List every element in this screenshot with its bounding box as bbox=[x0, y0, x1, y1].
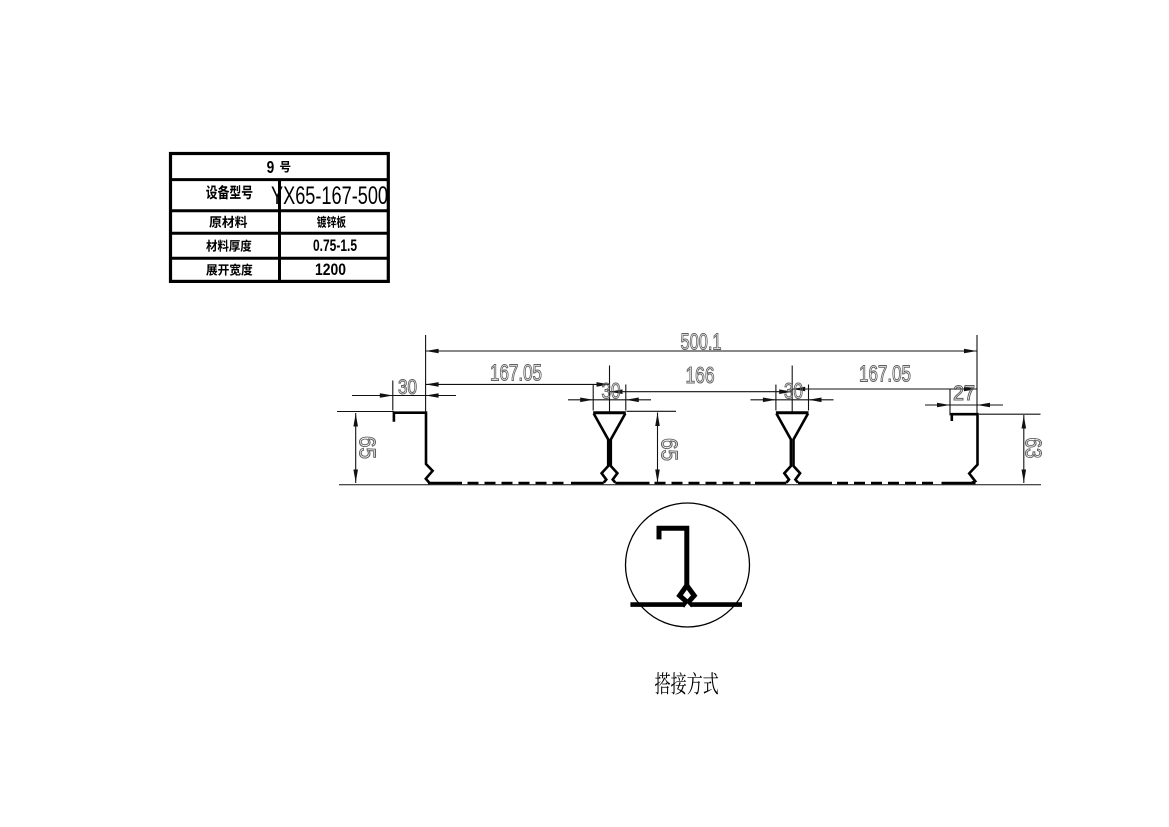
svg-text:1200: 1200 bbox=[315, 261, 346, 279]
svg-text:500.1: 500.1 bbox=[681, 329, 722, 355]
svg-text:YX65-167-500: YX65-167-500 bbox=[271, 182, 388, 210]
svg-text:167.05: 167.05 bbox=[859, 361, 911, 387]
svg-text:30: 30 bbox=[398, 376, 417, 399]
svg-text:167.05: 167.05 bbox=[490, 360, 542, 386]
svg-text:65: 65 bbox=[354, 436, 380, 459]
svg-text:166: 166 bbox=[686, 362, 715, 388]
svg-text:30: 30 bbox=[602, 378, 621, 403]
svg-text:0.75-1.5: 0.75-1.5 bbox=[313, 237, 357, 255]
svg-text:27: 27 bbox=[953, 382, 975, 405]
svg-text:30: 30 bbox=[784, 378, 803, 403]
svg-text:63: 63 bbox=[1021, 438, 1047, 459]
svg-text:65: 65 bbox=[657, 438, 683, 461]
svg-text:9: 9 bbox=[267, 157, 275, 177]
